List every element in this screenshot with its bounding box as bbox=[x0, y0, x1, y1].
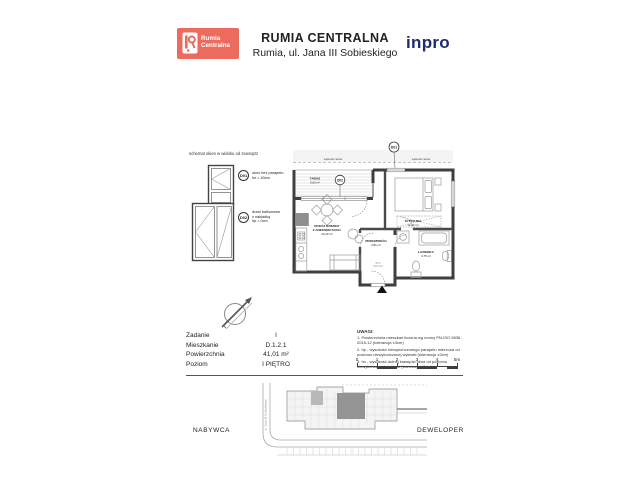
terrace bbox=[295, 170, 373, 197]
room-area-taras: 5,60 m² bbox=[310, 181, 320, 185]
page-title: RUMIA CENTRALNA bbox=[240, 31, 410, 45]
logo-text: Rumia Centralna bbox=[201, 35, 230, 50]
scale-baseline bbox=[357, 366, 458, 367]
entrance-label-2: wejściowe bbox=[373, 266, 384, 268]
inpro-logo: inpro bbox=[406, 33, 450, 53]
table-row: Powierzchnia 41,01 m² bbox=[186, 350, 314, 360]
title-block: RUMIA CENTRALNA Rumia, ul. Jana III Sobi… bbox=[240, 31, 410, 59]
window-code-d01: D01 bbox=[238, 170, 249, 181]
row-label: Powierzchnia bbox=[186, 351, 238, 358]
window-note-d01-line2: hn = 40cm bbox=[252, 176, 283, 181]
note-item: 1. Powierzchnia mieszkań liczona wg norm… bbox=[357, 335, 463, 345]
table-row: Poziom I PIĘTRO bbox=[186, 360, 314, 370]
row-value: D.1.2.1 bbox=[238, 342, 314, 349]
highlighted-unit bbox=[337, 393, 365, 419]
scale-tick-label: 2 bbox=[390, 357, 404, 362]
scale-tick-label: 5m bbox=[450, 357, 464, 362]
highlighted-stairwell bbox=[311, 391, 323, 405]
site-plan: ul. Jana III Sobieskiego bbox=[247, 383, 427, 463]
page: Rumia Centralna RUMIA CENTRALNA Rumia, u… bbox=[0, 0, 640, 480]
table-row: Zadanie I bbox=[186, 331, 314, 341]
window-diagram-d02 bbox=[191, 202, 235, 262]
scale-bar: 0 1 2 3 4 5m bbox=[357, 357, 461, 372]
neighbor-terrace-label-right: sąsiedni taras bbox=[412, 157, 431, 161]
window-diagram-d01 bbox=[207, 164, 235, 206]
window-note-d02: drzwi balkonowe z nakładką hp = 0cm bbox=[252, 210, 280, 224]
rumia-centralna-logo: Rumia Centralna bbox=[177, 28, 239, 59]
details-table: Zadanie I Mieszkanie D.1.2.1 Powierzchni… bbox=[186, 331, 314, 369]
logo-text-line2: Centralna bbox=[201, 42, 230, 49]
parking-ticks bbox=[287, 447, 417, 455]
row-value: 41,01 m² bbox=[238, 351, 314, 358]
scale-tick-label: 4 bbox=[430, 357, 444, 362]
buyer-label: NABYWCA bbox=[193, 427, 230, 434]
separator-line bbox=[186, 375, 463, 376]
notes-title: UWAGI: bbox=[357, 329, 463, 334]
row-value: I PIĘTRO bbox=[238, 361, 314, 368]
floor-plan: sąsiedni taras sąsiedni taras D01 bbox=[283, 133, 463, 295]
street-label: ul. Jana III Sobieskiego bbox=[264, 399, 268, 430]
note-item: 2. hp - wysokość niewykończonego parapet… bbox=[357, 347, 463, 357]
row-value: I bbox=[238, 332, 314, 339]
scale-tick-label: 1 bbox=[370, 357, 384, 362]
room-area-lazienka: 4,75 m² bbox=[421, 254, 431, 258]
room-area-living: 20,43 m² bbox=[321, 232, 332, 236]
rumia-logo-icon bbox=[182, 32, 198, 54]
north-compass-icon bbox=[214, 292, 260, 334]
page-subtitle: Rumia, ul. Jana III Sobieskiego bbox=[240, 47, 410, 59]
row-label: Poziom bbox=[186, 361, 238, 368]
table-row: Mieszkanie D.1.2.1 bbox=[186, 341, 314, 351]
svg-text:D01: D01 bbox=[391, 145, 397, 149]
room-area-sypialnia: 12,02 m² bbox=[407, 223, 418, 227]
entrance-label-1: drzwi bbox=[375, 262, 381, 265]
window-note-d01: okno bez parapetu hn = 40cm bbox=[252, 171, 283, 180]
logo-text-line1: Rumia bbox=[201, 35, 230, 42]
window-code-d02: D02 bbox=[238, 212, 249, 223]
scale-tick-label: 0 bbox=[350, 357, 364, 362]
row-label: Zadanie bbox=[186, 332, 238, 339]
neighbor-terrace-label-left: sąsiedni taras bbox=[324, 157, 343, 161]
schematics-caption: schemat okien w widoku od zewnątrz bbox=[189, 151, 258, 156]
scale-tick-label: 3 bbox=[410, 357, 424, 362]
svg-text:D02: D02 bbox=[337, 178, 343, 182]
window-note-d02-line3: hp = 0cm bbox=[252, 219, 280, 224]
room-area-przedpokoj: 3,81 m² bbox=[371, 243, 381, 247]
row-label: Mieszkanie bbox=[186, 342, 238, 349]
